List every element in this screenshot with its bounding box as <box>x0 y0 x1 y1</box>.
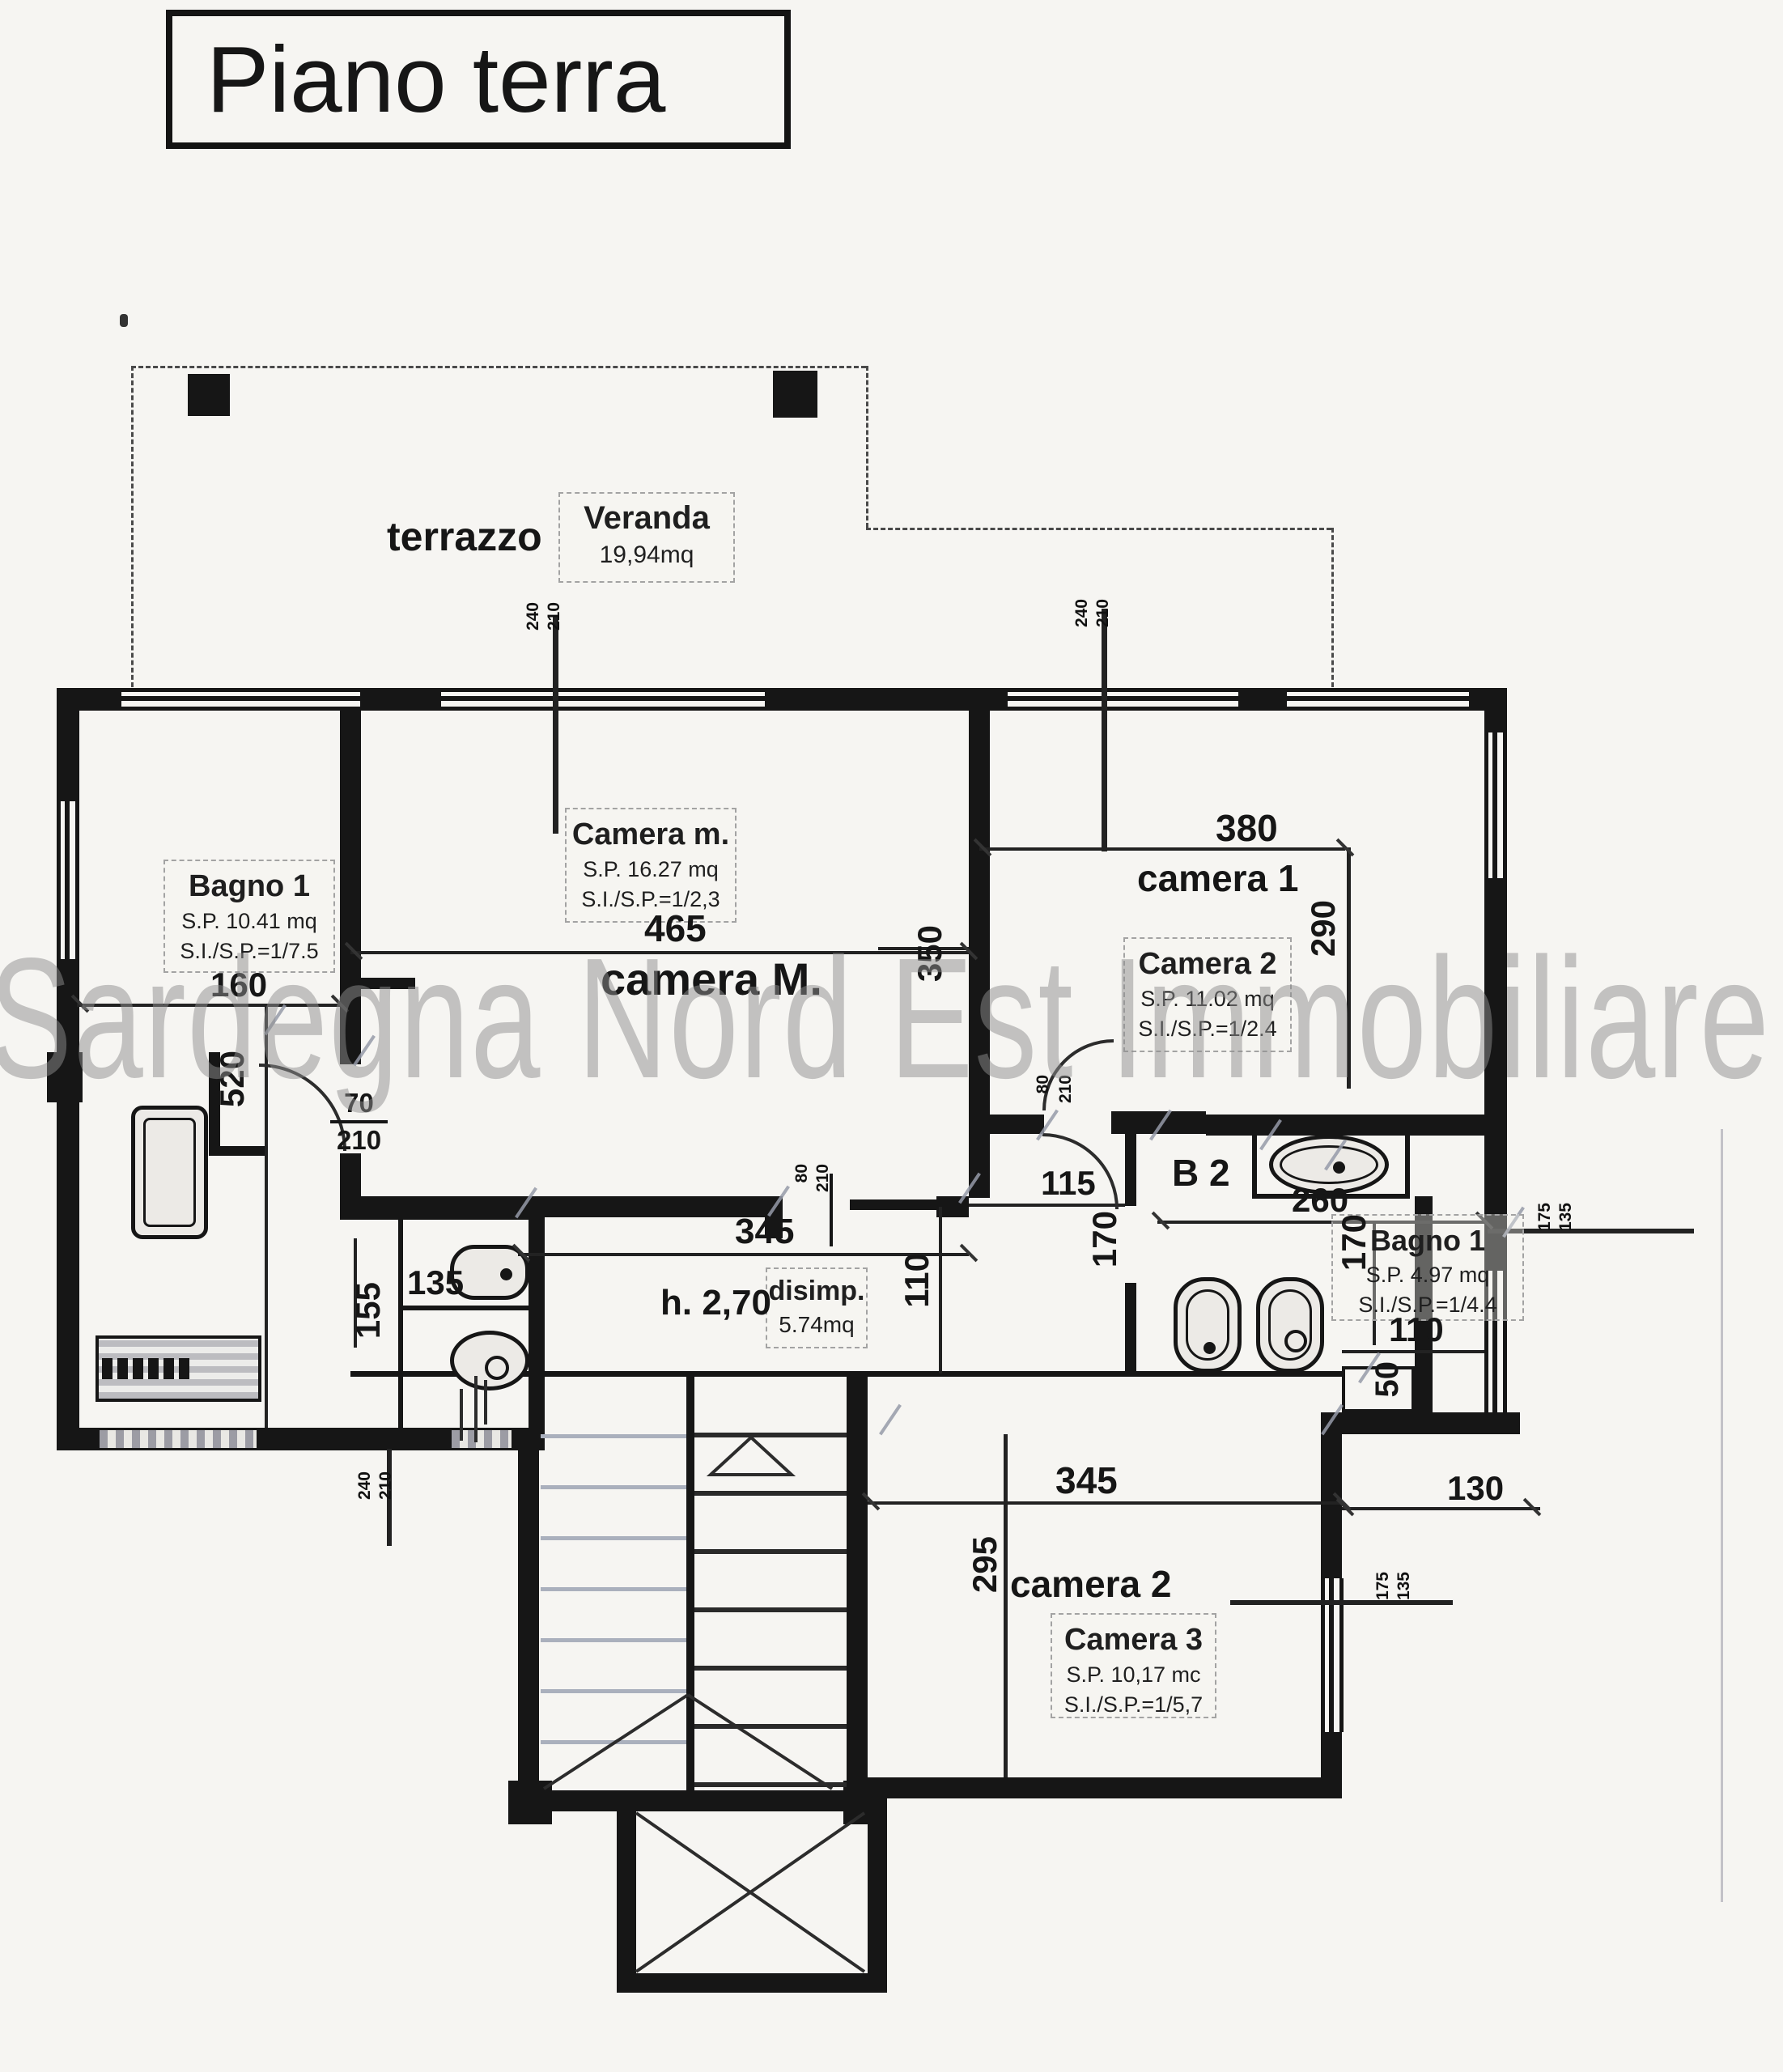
watermark: Sardegna Nord Est Immobiliare <box>0 932 1770 1104</box>
dim-170-right: 170 <box>1337 1214 1371 1271</box>
room-name: Camera m. <box>567 817 735 852</box>
dim-155: 155 <box>351 1282 385 1339</box>
window-marker: 210 <box>377 1471 394 1500</box>
window-marker: 210 <box>1094 599 1111 627</box>
room-sp: S.P. 16.27 mq <box>567 857 735 882</box>
terrace-label: terrazzo <box>387 516 542 557</box>
door-note-80: 80 <box>793 1164 810 1182</box>
dim-50: 50 <box>1371 1361 1403 1398</box>
camera1-floor-label: camera 1 <box>1137 860 1299 897</box>
height-note-label: h. 2,70 <box>660 1285 771 1321</box>
room-ratio: S.I./S.P.=1/5,7 <box>1052 1692 1215 1717</box>
window-marker: 240 <box>524 602 541 631</box>
window-marker: 240 <box>1073 599 1090 627</box>
dim-110-corridor: 110 <box>900 1253 934 1308</box>
veranda-annotation-box: Veranda 19,94mq <box>558 492 735 583</box>
floor-plan-scan: Piano terra terrazzo Veranda 19,94mq <box>0 0 1783 2072</box>
dim-380: 380 <box>1216 809 1278 847</box>
stair-diagonal <box>688 1695 832 1789</box>
room-name: disimp. <box>767 1276 866 1307</box>
dim-260: 260 <box>1292 1183 1348 1217</box>
room-name: Bagno 1 <box>165 869 333 904</box>
handrail-mark <box>476 1376 486 1442</box>
dim-110-right: 110 <box>1389 1313 1444 1347</box>
window-marker: 175 <box>1374 1572 1391 1600</box>
dim-345-camera3: 345 <box>1055 1462 1118 1499</box>
plan-title-box: Piano terra <box>166 10 791 149</box>
camera2-floor-label: camera 2 <box>1010 1565 1172 1603</box>
plan-title: Piano terra <box>206 25 665 134</box>
room-area: 5.74mq <box>767 1312 866 1338</box>
window-marker: 240 <box>356 1471 373 1500</box>
veranda-area: 19,94mq <box>560 541 733 569</box>
window-marker: 210 <box>546 602 562 631</box>
camera3-annotation: Camera 3 S.P. 10,17 mc S.I./S.P.=1/5,7 <box>1051 1613 1216 1718</box>
room-sp: S.P. 10,17 mc <box>1052 1662 1215 1688</box>
window-marker: 135 <box>1395 1572 1412 1600</box>
dim-115: 115 <box>1041 1166 1096 1200</box>
window-marker: 135 <box>1557 1203 1574 1231</box>
dim-345-corridor: 345 <box>735 1214 794 1250</box>
camera-m-annotation: Camera m. S.P. 16.27 mq S.I./S.P.=1/2,3 <box>565 808 737 923</box>
dim-135: 135 <box>407 1266 464 1300</box>
disimp-annotation: disimp. 5.74mq <box>766 1267 868 1348</box>
veranda-name: Veranda <box>560 500 733 537</box>
room-name: Camera 3 <box>1052 1623 1215 1658</box>
dim-170-b2: 170 <box>1088 1211 1122 1267</box>
window-marker: 175 <box>1536 1203 1553 1231</box>
dim-295: 295 <box>968 1536 1002 1593</box>
stair-diagonal <box>544 1695 688 1789</box>
dim-130: 130 <box>1447 1471 1504 1505</box>
door-note-210: 210 <box>814 1164 831 1192</box>
door-height: 210 <box>330 1123 388 1157</box>
stair-direction-triangle <box>711 1437 792 1475</box>
b2-label: B 2 <box>1172 1154 1230 1191</box>
